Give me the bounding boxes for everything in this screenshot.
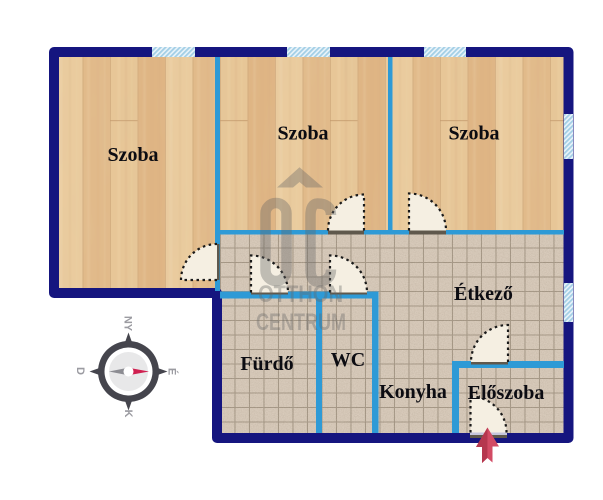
svg-text:D: D — [74, 367, 86, 375]
svg-text:É: É — [166, 368, 179, 375]
svg-text:Étkező: Étkező — [454, 282, 513, 305]
svg-text:WC: WC — [331, 349, 365, 371]
svg-text:Szoba: Szoba — [107, 144, 158, 166]
svg-text:CENTRUM: CENTRUM — [256, 309, 346, 336]
svg-text:Szoba: Szoba — [277, 123, 328, 145]
svg-text:Előszoba: Előszoba — [468, 382, 545, 404]
svg-text:NY: NY — [122, 316, 134, 332]
svg-text:K: K — [122, 410, 134, 418]
svg-text:Fürdő: Fürdő — [240, 353, 293, 375]
svg-text:OTTHON: OTTHON — [258, 281, 343, 308]
svg-text:Konyha: Konyha — [379, 381, 447, 403]
svg-text:Szoba: Szoba — [448, 123, 499, 145]
